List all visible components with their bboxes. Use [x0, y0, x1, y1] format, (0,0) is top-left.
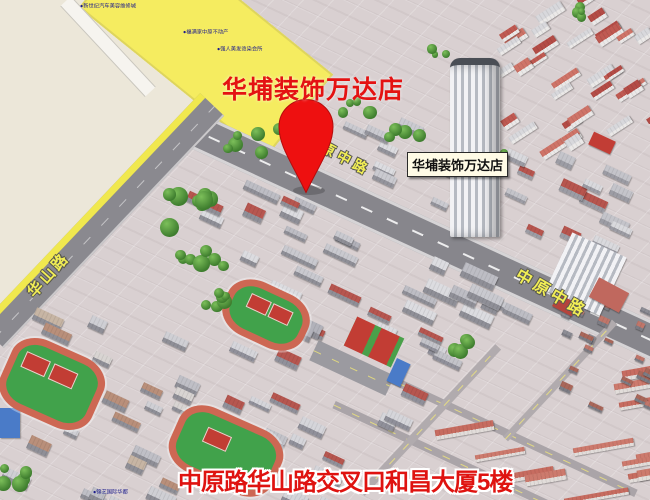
tree: [462, 336, 475, 349]
store-marker-label[interactable]: 华埔装饰万达店: [407, 152, 508, 177]
poi-label: ●强人美发烫染会所: [217, 45, 262, 52]
tree: [363, 106, 376, 119]
poi-label: ●福满家中原不动产: [183, 28, 228, 35]
map-title: 华埔装饰万达店: [222, 70, 404, 106]
tree: [193, 255, 209, 271]
tree: [413, 129, 426, 142]
tree: [578, 8, 585, 15]
tree: [255, 146, 268, 159]
tree: [338, 107, 349, 118]
poi-label: ●新世纪汽车美容维修城: [80, 2, 136, 9]
building: [0, 408, 20, 438]
tree: [175, 250, 185, 260]
highrise-tower: [450, 58, 500, 237]
tree: [384, 132, 394, 142]
tree: [195, 191, 213, 209]
tree: [20, 466, 33, 479]
tree: [12, 476, 27, 491]
poi-label: ●锦艺国际华都: [93, 488, 128, 495]
tree: [233, 131, 242, 140]
location-pin-icon[interactable]: [277, 97, 335, 194]
tree: [427, 44, 436, 53]
map-canvas[interactable]: 华山路 原中路 中原中路 ●新世纪汽车美容维修城 ●福满家中原不动产 ●强人美发…: [0, 0, 650, 500]
tree: [223, 144, 232, 153]
address-caption: 中原路华山路交叉口和昌大厦5楼: [178, 462, 512, 497]
tree: [251, 127, 265, 141]
tree: [163, 188, 175, 200]
